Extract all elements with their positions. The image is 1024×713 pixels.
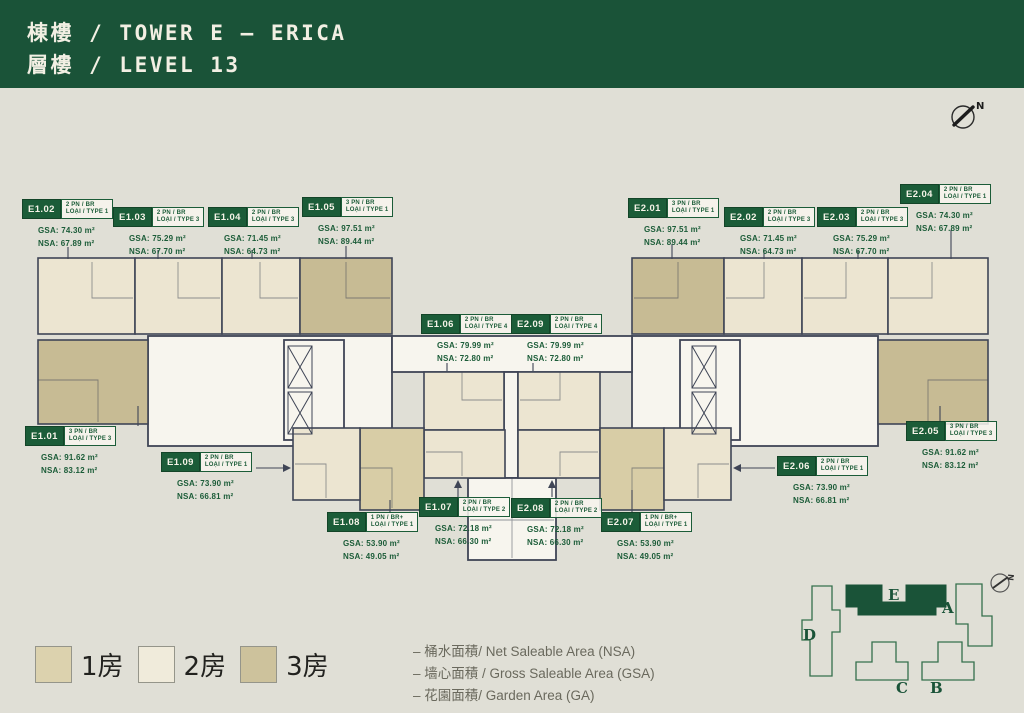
unit-code: E2.02 xyxy=(724,207,763,227)
unit-bed: 3 PN / BR xyxy=(346,200,389,207)
tower-a-outline xyxy=(956,584,992,646)
unit-nsa: NSA: 66.30 m² xyxy=(527,538,615,547)
legend-item-3br: 3房 xyxy=(240,646,329,683)
unit-type: 1 PN / BR+LOẠI / TYPE 1 xyxy=(640,512,693,532)
unit-type-line: LOẠI / TYPE 1 xyxy=(821,466,864,473)
unit-bed: 2 PN / BR xyxy=(66,202,109,209)
minimap-compass-icon: N xyxy=(991,573,1015,592)
unit-gsa: GSA: 71.45 m² xyxy=(224,234,312,243)
legend-swatch-1br xyxy=(35,646,72,683)
unit-type-line: LOẠI / TYPE 1 xyxy=(371,522,414,529)
note-nsa: – 桶水面積/ Net Saleable Area (NSA) xyxy=(413,641,655,663)
unit-code: E2.05 xyxy=(906,421,945,441)
unit-gsa: GSA: 71.45 m² xyxy=(740,234,828,243)
minimap-compass-n: N xyxy=(1006,573,1016,581)
unit-gsa: GSA: 73.90 m² xyxy=(177,479,265,488)
unit-e1-03-area xyxy=(135,258,222,334)
unit-gsa: GSA: 75.29 m² xyxy=(833,234,921,243)
unit-e1-06-area xyxy=(424,372,504,430)
legend-swatch-2br xyxy=(138,646,175,683)
unit-type-line: LOẠI / TYPE 3 xyxy=(252,217,295,224)
unit-label-e2-07: E2.071 PN / BR+LOẠI / TYPE 1 GSA: 53.90 … xyxy=(601,512,705,561)
legend-item-2br: 2房 xyxy=(138,646,227,683)
unit-type-line: LOẠI / TYPE 1 xyxy=(672,208,715,215)
unit-label-e1-04: E1.042 PN / BRLOẠI / TYPE 3 GSA: 71.45 m… xyxy=(208,207,312,256)
unit-label-e1-03: E1.032 PN / BRLOẠI / TYPE 3 GSA: 75.29 m… xyxy=(113,207,217,256)
unit-label-e1-07: E1.072 PN / BRLOẠI / TYPE 2 GSA: 72.18 m… xyxy=(419,497,523,546)
area-notes: – 桶水面積/ Net Saleable Area (NSA) – 墙心面積 /… xyxy=(413,641,655,707)
unit-label-e1-09: E1.092 PN / BRLOẠI / TYPE 1 GSA: 73.90 m… xyxy=(161,452,265,501)
unit-type-line: LOẠI / TYPE 2 xyxy=(463,507,506,514)
tower-c-label: C xyxy=(896,679,908,697)
unit-type-line: LOẠI / TYPE 1 xyxy=(346,207,389,214)
unit-code: E1.06 xyxy=(421,314,460,334)
unit-nsa: NSA: 89.44 m² xyxy=(318,237,406,246)
unit-e2-03-area xyxy=(802,258,888,334)
unit-nsa: NSA: 64.73 m² xyxy=(224,247,312,256)
unit-code: E1.08 xyxy=(327,512,366,532)
unit-type: 2 PN / BRLOẠI / TYPE 3 xyxy=(247,207,300,227)
unit-label-e1-02: E1.022 PN / BRLOẠI / TYPE 1 GSA: 74.30 m… xyxy=(22,199,126,248)
unit-type-line: LOẠI / TYPE 4 xyxy=(465,324,508,331)
unit-label-e2-08: E2.082 PN / BRLOẠI / TYPE 2 GSA: 72.18 m… xyxy=(511,498,615,547)
unit-label-e2-02: E2.022 PN / BRLOẠI / TYPE 3 GSA: 71.45 m… xyxy=(724,207,828,256)
unit-bed: 1 PN / BR+ xyxy=(645,515,688,522)
unit-type: 1 PN / BR+LOẠI / TYPE 1 xyxy=(366,512,419,532)
unit-type: 2 PN / BRLOẠI / TYPE 1 xyxy=(939,184,992,204)
unit-code: E2.01 xyxy=(628,198,667,218)
unit-code: E2.04 xyxy=(900,184,939,204)
unit-type-line: LOẠI / TYPE 1 xyxy=(645,522,688,529)
unit-gsa: GSA: 79.99 m² xyxy=(527,341,615,350)
unit-bed: 2 PN / BR xyxy=(465,317,508,324)
unit-e1-02-area xyxy=(38,258,135,334)
tower-d-label: D xyxy=(803,626,816,644)
unit-nsa: NSA: 67.89 m² xyxy=(916,224,1004,233)
unit-code: E1.03 xyxy=(113,207,152,227)
tower-b-outline xyxy=(922,642,974,680)
unit-label-e2-06: E2.062 PN / BRLOẠI / TYPE 1 GSA: 73.90 m… xyxy=(777,456,881,505)
unit-e2-09-area xyxy=(518,372,600,430)
unit-label-e1-01: E1.013 PN / BRLOẠI / TYPE 3 GSA: 91.62 m… xyxy=(25,426,129,475)
unit-type-line: LOẠI / TYPE 3 xyxy=(950,431,993,438)
unit-bed: 2 PN / BR xyxy=(555,317,598,324)
legend-item-1br: 1房 xyxy=(35,646,124,683)
unit-code: E2.06 xyxy=(777,456,816,476)
compass-n-label: N xyxy=(976,101,984,112)
unit-label-e2-05: E2.053 PN / BRLOẠI / TYPE 3 GSA: 91.62 m… xyxy=(906,421,1010,470)
unit-gsa: GSA: 97.51 m² xyxy=(644,225,732,234)
legend-label-2br: 2房 xyxy=(184,646,227,683)
unit-type: 3 PN / BRLOẠI / TYPE 1 xyxy=(667,198,720,218)
unit-code: E2.08 xyxy=(511,498,550,518)
legend: 1房 2房 3房 xyxy=(35,646,333,683)
unit-gsa: GSA: 74.30 m² xyxy=(916,211,1004,220)
unit-nsa: NSA: 49.05 m² xyxy=(617,552,705,561)
unit-bed: 2 PN / BR xyxy=(205,455,248,462)
unit-code: E2.03 xyxy=(817,207,856,227)
unit-bed: 1 PN / BR+ xyxy=(371,515,414,522)
unit-code: E1.05 xyxy=(302,197,341,217)
note-ga: – 花園面積/ Garden Area (GA) xyxy=(413,685,655,707)
unit-gsa: GSA: 91.62 m² xyxy=(922,448,1010,457)
unit-nsa: NSA: 89.44 m² xyxy=(644,238,732,247)
unit-gsa: GSA: 53.90 m² xyxy=(343,539,431,548)
unit-type: 2 PN / BRLOẠI / TYPE 2 xyxy=(550,498,603,518)
unit-e2-08-area xyxy=(518,430,600,478)
unit-bed: 2 PN / BR xyxy=(944,187,987,194)
unit-type-line: LOẠI / TYPE 3 xyxy=(861,217,904,224)
brochure-page: 棟樓 / TOWER E – ERICA 層樓 / LEVEL 13 N xyxy=(0,0,1024,713)
site-minimap: D E A C B N xyxy=(802,573,1015,697)
unit-type: 2 PN / BRLOẠI / TYPE 4 xyxy=(550,314,603,334)
unit-label-e2-04: E2.042 PN / BRLOẠI / TYPE 1 GSA: 74.30 m… xyxy=(900,184,1004,233)
unit-nsa: NSA: 72.80 m² xyxy=(527,354,615,363)
unit-e2-02-area xyxy=(724,258,802,334)
unit-type: 2 PN / BRLOẠI / TYPE 1 xyxy=(816,456,869,476)
unit-type-line: LOẠI / TYPE 3 xyxy=(768,217,811,224)
unit-type: 2 PN / BRLOẠI / TYPE 1 xyxy=(200,452,253,472)
unit-type: 2 PN / BRLOẠI / TYPE 3 xyxy=(152,207,205,227)
unit-nsa: NSA: 83.12 m² xyxy=(922,461,1010,470)
unit-type: 3 PN / BRLOẠI / TYPE 3 xyxy=(64,426,117,446)
unit-type-line: LOẠI / TYPE 4 xyxy=(555,324,598,331)
unit-label-e2-09: E2.092 PN / BRLOẠI / TYPE 4 GSA: 79.99 m… xyxy=(511,314,615,363)
tower-a-label: A xyxy=(941,599,954,617)
unit-gsa: GSA: 97.51 m² xyxy=(318,224,406,233)
unit-nsa: NSA: 66.81 m² xyxy=(177,492,265,501)
unit-nsa: NSA: 83.12 m² xyxy=(41,466,129,475)
unit-nsa: NSA: 66.81 m² xyxy=(793,496,881,505)
unit-gsa: GSA: 75.29 m² xyxy=(129,234,217,243)
unit-label-e1-08: E1.081 PN / BR+LOẠI / TYPE 1 GSA: 53.90 … xyxy=(327,512,431,561)
unit-label-e1-05: E1.053 PN / BRLOẠI / TYPE 1 GSA: 97.51 m… xyxy=(302,197,406,246)
legend-label-1br: 1房 xyxy=(81,646,124,683)
note-gsa: – 墙心面積 / Gross Saleable Area (GSA) xyxy=(413,663,655,685)
tower-e-label: E xyxy=(888,586,899,604)
unit-code: E2.09 xyxy=(511,314,550,334)
tower-c-outline xyxy=(856,642,908,680)
unit-e2-04-area xyxy=(888,258,988,334)
unit-bed: 2 PN / BR xyxy=(157,210,200,217)
unit-e1-04-area xyxy=(222,258,300,334)
unit-type: 2 PN / BRLOẠI / TYPE 4 xyxy=(460,314,513,334)
unit-nsa: NSA: 67.70 m² xyxy=(129,247,217,256)
unit-bed: 2 PN / BR xyxy=(463,500,506,507)
unit-bed: 2 PN / BR xyxy=(555,501,598,508)
unit-bed: 2 PN / BR xyxy=(768,210,811,217)
unit-code: E1.01 xyxy=(25,426,64,446)
unit-gsa: GSA: 73.90 m² xyxy=(793,483,881,492)
unit-label-e2-01: E2.013 PN / BRLOẠI / TYPE 1 GSA: 97.51 m… xyxy=(628,198,732,247)
unit-type-line: LOẠI / TYPE 2 xyxy=(555,508,598,515)
unit-code: E1.02 xyxy=(22,199,61,219)
unit-nsa: NSA: 67.70 m² xyxy=(833,247,921,256)
unit-gsa: GSA: 91.62 m² xyxy=(41,453,129,462)
unit-type-line: LOẠI / TYPE 1 xyxy=(205,462,248,469)
unit-code: E1.09 xyxy=(161,452,200,472)
unit-gsa: GSA: 72.18 m² xyxy=(527,525,615,534)
unit-type: 3 PN / BRLOẠI / TYPE 3 xyxy=(945,421,998,441)
unit-e1-07-area xyxy=(424,430,505,478)
unit-type: 2 PN / BRLOẠI / TYPE 3 xyxy=(763,207,816,227)
unit-bed: 2 PN / BR xyxy=(821,459,864,466)
unit-type-line: LOẠI / TYPE 3 xyxy=(69,436,112,443)
unit-bed: 3 PN / BR xyxy=(950,424,993,431)
unit-type: 3 PN / BRLOẠI / TYPE 1 xyxy=(341,197,394,217)
tower-b-label: B xyxy=(930,679,943,697)
unit-type-line: LOẠI / TYPE 1 xyxy=(944,194,987,201)
unit-e1-01-area xyxy=(38,340,148,424)
unit-nsa: NSA: 49.05 m² xyxy=(343,552,431,561)
unit-bed: 3 PN / BR xyxy=(69,429,112,436)
unit-nsa: NSA: 66.30 m² xyxy=(435,537,523,546)
unit-type-line: LOẠI / TYPE 1 xyxy=(66,209,109,216)
unit-nsa: NSA: 64.73 m² xyxy=(740,247,828,256)
unit-label-e1-06: E1.062 PN / BRLOẠI / TYPE 4 GSA: 79.99 m… xyxy=(421,314,525,363)
unit-code: E1.04 xyxy=(208,207,247,227)
unit-bed: 3 PN / BR xyxy=(672,201,715,208)
unit-type-line: LOẠI / TYPE 3 xyxy=(157,217,200,224)
unit-e2-05-area xyxy=(878,340,988,424)
unit-gsa: GSA: 53.90 m² xyxy=(617,539,705,548)
unit-bed: 2 PN / BR xyxy=(252,210,295,217)
unit-type: 2 PN / BRLOẠI / TYPE 2 xyxy=(458,497,511,517)
north-compass-icon: N xyxy=(952,101,984,128)
unit-bed: 2 PN / BR xyxy=(861,210,904,217)
unit-type: 2 PN / BRLOẠI / TYPE 1 xyxy=(61,199,114,219)
legend-swatch-3br xyxy=(240,646,277,683)
unit-gsa: GSA: 72.18 m² xyxy=(435,524,523,533)
legend-label-3br: 3房 xyxy=(286,646,329,683)
